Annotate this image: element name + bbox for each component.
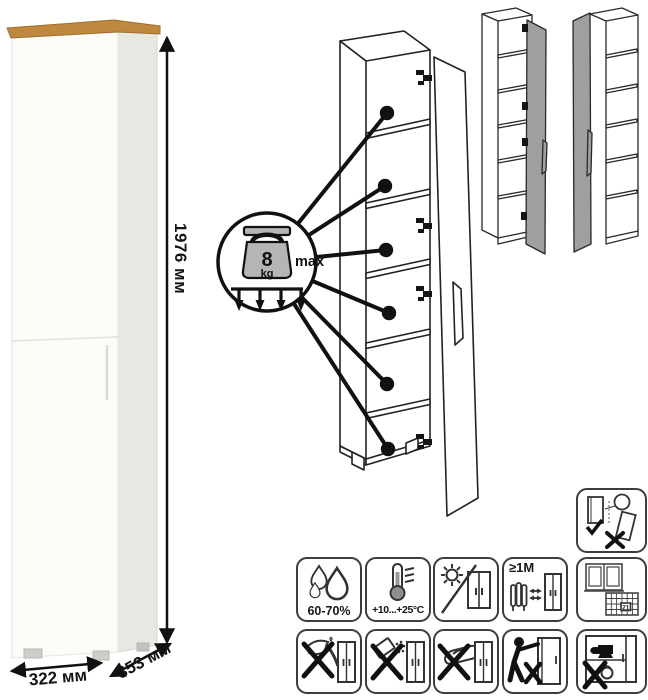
- care-tile-heat-distance: ≥1М: [502, 557, 568, 622]
- no-overload-icon: [580, 632, 643, 690]
- shelf-dots: [378, 106, 396, 456]
- max-load-callout: 8 kg max: [218, 213, 324, 311]
- anchor-to-wall-icon: [580, 491, 643, 549]
- door-handle: [453, 282, 463, 345]
- cabinet-side-panel: [118, 30, 157, 652]
- care-tile-anchor-to-wall: [576, 488, 647, 553]
- height-dimension-label: 1976 мм: [170, 223, 190, 294]
- product-photo: [7, 20, 160, 660]
- window-calendar-icon: 21: [580, 560, 643, 618]
- cabinet-front-door: [12, 30, 118, 658]
- max-label: max: [295, 254, 324, 270]
- weight-unit: kg: [261, 268, 274, 280]
- temperature-label: +10...+25°C: [367, 604, 429, 616]
- variant-door-handle: [587, 130, 592, 176]
- variant-door-handle: [542, 140, 547, 174]
- humidity-label: 60-70%: [298, 604, 360, 618]
- care-tile-humidity: 60-70%: [296, 557, 362, 622]
- care-tile-no-dragging: [502, 629, 568, 694]
- no-abrasives-icon: [369, 632, 428, 690]
- care-tile-temperature: +10...+25°C: [365, 557, 431, 622]
- no-hot-objects-icon: [437, 632, 496, 690]
- heat-distance-label: ≥1М: [509, 560, 534, 575]
- variant-door-gray: [526, 20, 546, 254]
- tech-foot: [406, 438, 418, 454]
- no-sharp-tools-icon: [300, 632, 359, 690]
- care-tile-no-overload: [576, 629, 647, 694]
- care-tile-no-sharp-tools: [296, 629, 362, 694]
- no-direct-sunlight-icon: [437, 560, 496, 618]
- variant-shelves: [606, 49, 637, 199]
- furniture-product-sheet: 8 kg max: [0, 0, 648, 700]
- technical-drawing-cabinet: [340, 31, 478, 516]
- door-variant-right-hinge: [573, 8, 638, 252]
- humidity-drops-icon: [300, 560, 359, 602]
- care-tile-no-hot-objects: [433, 629, 499, 694]
- tech-bottom-front: [366, 440, 430, 465]
- thermometer-icon: [369, 560, 428, 602]
- no-dragging-icon: [506, 632, 565, 690]
- door-variant-left-hinge: [482, 8, 547, 254]
- care-tile-no-abrasives: [365, 629, 431, 694]
- calendar-day: 21: [622, 604, 630, 611]
- care-tile-no-sunlight: [433, 557, 499, 622]
- care-tile-ventilation: 21: [576, 557, 647, 622]
